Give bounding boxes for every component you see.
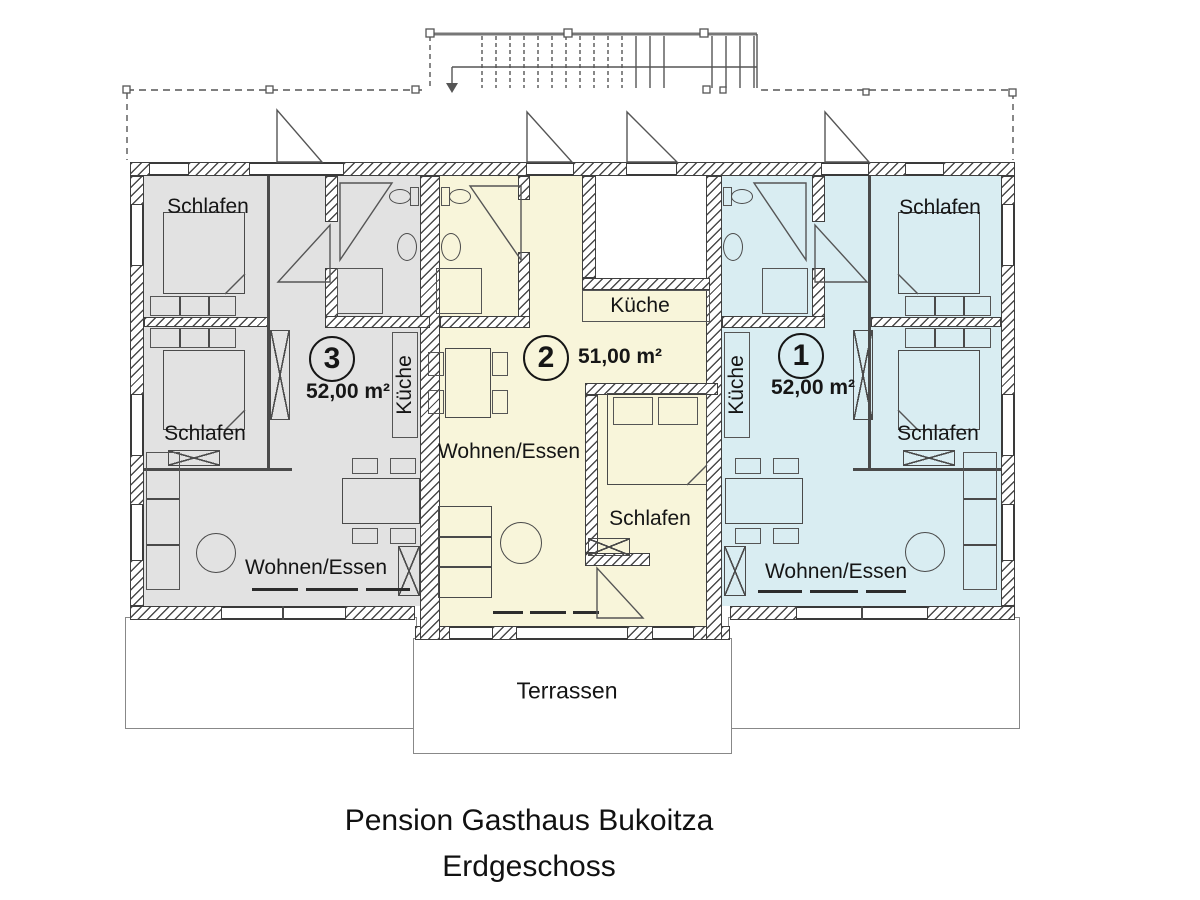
wall-bedroom1-left [868,176,871,470]
plan-subtitle: Erdgeschoss [442,850,615,884]
wardrobe [853,330,873,420]
wall-bath2-bottom [440,316,530,328]
floor-marking [573,611,599,614]
wall-separating-2-1 [706,176,722,640]
sofa [438,506,492,598]
wall-segment [130,560,144,606]
wall-segment [343,162,527,176]
dresser [150,296,236,316]
wardrobe [903,450,955,466]
chair [352,458,378,474]
chair [492,352,508,376]
floor-marking [252,588,298,591]
bed [163,350,245,430]
room-label-schlafen: Schlafen [164,422,246,446]
toilet-tank [410,187,419,206]
chair [390,528,416,544]
sideboard [146,452,180,590]
terrace-left [125,617,417,729]
room-label-kueche: Küche [725,355,749,415]
bed [898,350,980,430]
dresser [150,328,236,348]
door-swing-apartment-1 [825,112,869,162]
stair-treads-hidden [482,36,622,88]
wall-bath3-bottom [325,316,430,328]
chair [735,528,761,544]
wall-segment [1001,265,1015,395]
wall-bath2-right [518,176,530,200]
floor-marking [758,590,802,593]
wall-bath1-right [812,176,825,222]
wall-segment [730,606,797,620]
wall-bedrooms1-divider [871,317,1001,327]
wall-segment [1001,455,1015,505]
toilet [449,189,471,204]
room-label-schlafen: Schlafen [899,196,981,220]
apartment-1-number-badge: 1 [778,333,824,379]
wall-bedroom3-right [267,176,270,470]
dining-table [342,478,420,524]
room-label-wohnen-essen: Wohnen/Essen [765,560,907,584]
window-divider [282,606,284,620]
room-label-schlafen: Schlafen [167,195,249,219]
apartment-2-number-badge: 2 [523,335,569,381]
wall-segment [927,606,1015,620]
pillow [658,397,698,425]
chair [352,528,378,544]
apartment-3-area: 52,00 m² [306,380,390,404]
toilet [731,189,753,204]
wardrobe [588,538,630,556]
chair [492,390,508,414]
wall-segment [130,176,144,205]
sideboard [963,452,997,590]
wall-segment [345,606,415,620]
wall-bath1-bottom [722,316,825,328]
chair [773,528,799,544]
door-swing-apartment-2 [527,112,572,162]
room-label-wohnen-essen: Wohnen/Essen [245,556,387,580]
wall-bedrooms3-divider [144,317,270,327]
chair [390,458,416,474]
apartment-1-area: 52,00 m² [771,376,855,400]
wall-segment [676,162,822,176]
dresser [905,296,991,316]
pillow [613,397,653,425]
wall-bath3-left [325,176,338,222]
sink [397,233,417,261]
wall-segment [1001,560,1015,606]
wall-segment [492,626,517,640]
wall-segment [130,265,144,395]
wall-staircore-left [582,176,596,278]
floor-marking [810,590,858,593]
wall-exterior-bottom-middle [415,626,730,640]
floor-marking [530,611,566,614]
stair-treads [636,34,757,88]
floor-plan: Schlafen Schlafen Wohnen/Essen Küche Küc… [0,0,1200,900]
apartment-3-number-badge: 3 [309,336,355,382]
stair-arrow-head [446,83,458,93]
wall-segment [627,626,653,640]
door-swing-apartment-3 [277,110,322,162]
apartment-2-area: 51,00 m² [578,345,662,369]
shower [762,268,808,314]
wall-segment [868,162,906,176]
room-label-wohnen-essen: Wohnen/Essen [438,440,580,464]
wardrobe [724,546,746,596]
chair [428,352,444,376]
round-table [500,522,542,564]
shower [337,268,383,314]
floor-marking [493,611,523,614]
room-label-schlafen: Schlafen [897,422,979,446]
stair-core-room [596,176,706,278]
wall-segment [188,162,250,176]
wall-segment [130,455,144,505]
room-label-kueche: Küche [393,355,417,415]
door-swing-stair-core [627,112,677,162]
gallery-posts [123,29,1016,96]
terrace-label: Terrassen [517,678,618,705]
sink [441,233,461,261]
room-label-kueche: Küche [610,294,670,318]
toilet [389,189,411,204]
wall-segment [1001,176,1015,205]
floor-marking [306,588,358,591]
chair [735,458,761,474]
window-divider [861,606,863,620]
room-label-schlafen: Schlafen [609,507,691,531]
floor-marking [366,588,410,591]
sink [723,233,743,261]
bed [898,212,980,294]
dining-table [725,478,803,524]
wall-staircore-bottom [582,278,710,290]
round-table [905,532,945,572]
chair [428,390,444,414]
wall-segment [130,606,222,620]
wardrobe [270,330,290,420]
wall-segment [130,162,150,176]
floor-marking [866,590,906,593]
wall-segment [573,162,627,176]
wall-bedroom2-left [585,395,598,553]
bed [163,212,245,294]
plan-title: Pension Gasthaus Bukoitza [345,804,714,838]
wall-segment [943,162,1015,176]
dining-table [445,348,491,418]
terrace-right [728,617,1020,729]
dresser [905,328,991,348]
chair [773,458,799,474]
shower [436,268,482,314]
round-table [196,533,236,573]
